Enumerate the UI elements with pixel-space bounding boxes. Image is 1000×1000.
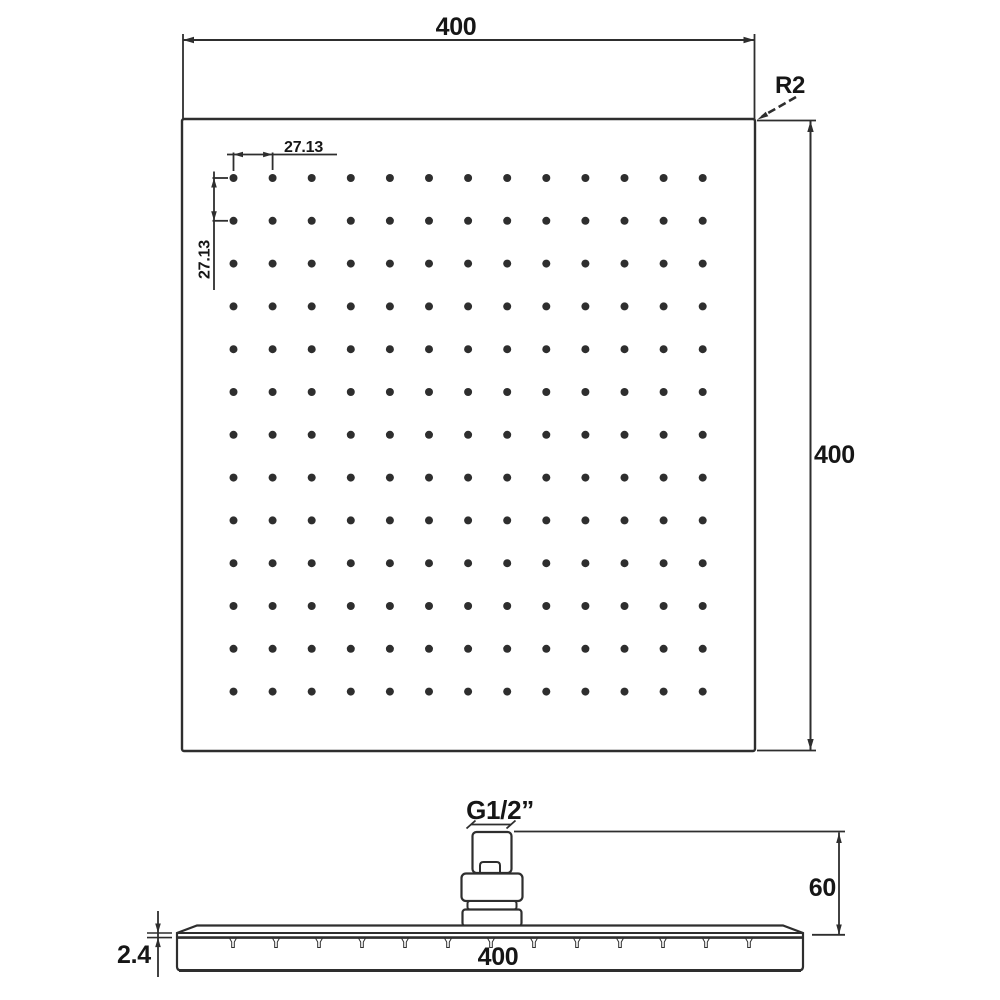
nozzle-hole: [464, 260, 472, 268]
nozzle-hole: [308, 217, 316, 225]
corner-radius-label: R2: [775, 74, 805, 98]
nozzle-hole: [269, 174, 277, 182]
nozzle-hole: [347, 516, 355, 524]
nozzle-hole: [269, 602, 277, 610]
nozzle-hole: [308, 602, 316, 610]
hole-pitch-horizontal-label: 27.13: [284, 140, 323, 156]
nozzle-hole: [660, 260, 668, 268]
nozzle-hole: [347, 345, 355, 353]
nozzle-hole: [308, 345, 316, 353]
nozzle-hole: [425, 516, 433, 524]
nozzle-hole: [347, 474, 355, 482]
nozzle-hole: [581, 559, 589, 567]
connector-height-dim-label: 60: [800, 876, 836, 901]
nozzle-hole: [230, 474, 238, 482]
arrowhead-icon: [155, 924, 161, 934]
nozzle-hole: [660, 302, 668, 310]
nozzle-hole: [542, 260, 550, 268]
nozzle-hole: [269, 474, 277, 482]
side-width-dim-label: 400: [462, 945, 534, 970]
nozzle-hole: [425, 431, 433, 439]
connector-height-dimension: [514, 832, 845, 935]
nozzle-hole: [581, 174, 589, 182]
nozzle-hole: [269, 688, 277, 696]
nozzle-hole: [386, 260, 394, 268]
nozzle-hole: [347, 260, 355, 268]
nozzle-hole: [660, 388, 668, 396]
top-width-dimension: [183, 34, 755, 119]
nozzle-hole: [464, 388, 472, 396]
nozzle-hole: [621, 174, 629, 182]
nozzle-hole: [269, 559, 277, 567]
nozzle-hole: [308, 302, 316, 310]
nozzle-hole: [308, 388, 316, 396]
nozzle-hole: [581, 388, 589, 396]
nozzle-hole: [503, 217, 511, 225]
nozzle-hole: [621, 217, 629, 225]
nozzle-hole: [621, 688, 629, 696]
right-height-dim-label: 400: [814, 443, 855, 468]
nozzle-hole: [660, 688, 668, 696]
nozzle-hole: [660, 345, 668, 353]
nozzle-hole: [308, 688, 316, 696]
hole-pitch-vertical-label: 27.13: [198, 225, 215, 295]
nozzle-hole: [581, 602, 589, 610]
nozzle-hole: [699, 688, 707, 696]
nozzle-hole: [308, 431, 316, 439]
nozzle-hole: [542, 602, 550, 610]
nozzle-hole: [542, 302, 550, 310]
nozzle-hole: [386, 645, 394, 653]
nozzle-hole: [425, 388, 433, 396]
nozzle-hole: [464, 559, 472, 567]
nozzle-hole: [581, 345, 589, 353]
nozzle-hole: [542, 431, 550, 439]
nozzle-hole: [621, 431, 629, 439]
nozzle-hole: [230, 516, 238, 524]
nozzle-hole: [660, 645, 668, 653]
nozzle-hole: [230, 688, 238, 696]
nozzle-hole: [621, 645, 629, 653]
nozzle-hole: [269, 388, 277, 396]
nozzle-hole: [503, 431, 511, 439]
arrowhead-icon: [744, 37, 755, 43]
nozzle-hole: [542, 688, 550, 696]
nozzle-hole: [230, 645, 238, 653]
nozzle-hole: [269, 431, 277, 439]
nozzle-hole: [660, 217, 668, 225]
nozzle-hole: [542, 559, 550, 567]
thread-stub: [473, 832, 512, 873]
nozzle-hole: [386, 302, 394, 310]
nozzle-hole: [699, 302, 707, 310]
nozzle-hole: [386, 217, 394, 225]
nozzle-hole: [542, 645, 550, 653]
nozzle-hole: [699, 174, 707, 182]
nozzle-hole: [464, 645, 472, 653]
nozzle-hole: [386, 516, 394, 524]
nozzle-hole: [386, 431, 394, 439]
plate-thickness-dim-label: 2.4: [117, 943, 151, 968]
nozzle-hole: [699, 431, 707, 439]
nozzle-hole: [425, 602, 433, 610]
drawing-geometry: [0, 0, 1000, 1000]
nozzle-hole: [347, 217, 355, 225]
nozzle-hole: [464, 516, 472, 524]
nozzle-hole: [347, 645, 355, 653]
connector-lower-collar: [463, 910, 522, 927]
nozzle-hole: [269, 645, 277, 653]
top-width-dim-label: 400: [420, 15, 492, 40]
nozzle-hole: [308, 516, 316, 524]
nozzle-hole: [503, 645, 511, 653]
arrowhead-icon: [807, 121, 813, 132]
nozzle-hole: [425, 302, 433, 310]
nozzle-hole: [269, 302, 277, 310]
nozzle-hole: [660, 431, 668, 439]
nozzle-hole: [347, 174, 355, 182]
nozzle-hole: [503, 688, 511, 696]
nozzle-hole: [425, 345, 433, 353]
nozzle-hole: [269, 260, 277, 268]
nozzle-hole: [308, 260, 316, 268]
nozzle-hole: [699, 217, 707, 225]
nozzle-hole: [621, 602, 629, 610]
nozzle-hole: [386, 388, 394, 396]
nozzle-hole: [542, 516, 550, 524]
drawing-sheet: 400 400 R2 27.13 27.13 G1/2” 60 2.4 400: [0, 0, 1000, 1000]
arrowhead-icon: [183, 37, 194, 43]
nozzle-hole: [542, 474, 550, 482]
nozzle-hole: [503, 559, 511, 567]
nozzle-hole: [542, 174, 550, 182]
nozzle-hole: [542, 345, 550, 353]
nozzle-hole: [660, 516, 668, 524]
nozzle-hole: [503, 174, 511, 182]
nozzle-hole: [581, 516, 589, 524]
nozzle-hole: [660, 474, 668, 482]
right-height-dimension: [757, 121, 816, 751]
nozzle-hole: [581, 260, 589, 268]
nozzle-hole: [347, 688, 355, 696]
nozzle-hole: [581, 217, 589, 225]
nozzle-hole: [230, 345, 238, 353]
nozzle-hole: [347, 431, 355, 439]
nozzle-hole: [542, 388, 550, 396]
thread-size-label: G1/2”: [460, 797, 540, 823]
nozzle-hole: [660, 174, 668, 182]
nozzle-hole: [621, 559, 629, 567]
arrowhead-icon: [836, 925, 842, 935]
nozzle-hole: [425, 559, 433, 567]
nozzle-hole: [464, 474, 472, 482]
arrowhead-icon: [836, 833, 842, 843]
nozzle-hole: [308, 645, 316, 653]
nozzle-hole: [230, 260, 238, 268]
nozzle-hole: [230, 174, 238, 182]
nozzle-hole: [308, 559, 316, 567]
nozzle-hole: [230, 602, 238, 610]
nozzle-hole: [308, 474, 316, 482]
nozzle-hole: [230, 388, 238, 396]
nozzle-hole: [464, 431, 472, 439]
nozzle-hole: [269, 345, 277, 353]
nozzle-hole: [425, 645, 433, 653]
nozzle-hole: [230, 302, 238, 310]
nozzle-hole: [269, 516, 277, 524]
nozzle-hole: [660, 602, 668, 610]
nozzle-hole: [230, 217, 238, 225]
nozzle-hole: [581, 302, 589, 310]
nozzle-hole: [425, 260, 433, 268]
nozzle-hole: [581, 431, 589, 439]
nozzle-hole: [425, 217, 433, 225]
nozzle-hole: [503, 260, 511, 268]
nozzle-hole: [503, 516, 511, 524]
nozzle-hole: [621, 260, 629, 268]
inlet-connector: [462, 832, 523, 926]
arrowhead-icon: [807, 739, 813, 750]
nozzle-hole: [503, 474, 511, 482]
nozzle-hole: [230, 431, 238, 439]
nozzle-hole: [269, 217, 277, 225]
nozzle-hole: [621, 345, 629, 353]
nozzle-hole: [581, 474, 589, 482]
nozzle-hole: [347, 302, 355, 310]
nozzle-hole: [464, 602, 472, 610]
nozzle-hole: [699, 474, 707, 482]
nozzle-hole: [386, 474, 394, 482]
nozzle-hole: [425, 174, 433, 182]
nozzle-hole: [464, 217, 472, 225]
nozzle-hole: [621, 302, 629, 310]
nozzle-hole: [347, 602, 355, 610]
nozzle-hole: [699, 260, 707, 268]
nozzle-hole: [230, 559, 238, 567]
nozzle-hole: [621, 388, 629, 396]
nozzle-hole: [699, 345, 707, 353]
nozzle-hole: [386, 174, 394, 182]
nozzle-hole: [386, 345, 394, 353]
nozzle-hole: [699, 559, 707, 567]
nozzle-hole: [464, 302, 472, 310]
nozzle-hole: [699, 602, 707, 610]
connector-waist-ring: [468, 901, 517, 910]
nozzle-hole: [503, 388, 511, 396]
nozzle-hole: [503, 302, 511, 310]
nozzle-hole: [308, 174, 316, 182]
nozzle-hole: [503, 602, 511, 610]
nozzle-hole: [699, 516, 707, 524]
nozzle-hole: [542, 217, 550, 225]
nozzle-hole: [425, 688, 433, 696]
nozzle-hole: [347, 559, 355, 567]
nozzle-hole: [699, 645, 707, 653]
nozzle-hole: [386, 602, 394, 610]
arrowhead-icon: [758, 112, 769, 120]
nozzle-hole: [347, 388, 355, 396]
nozzle-hole: [464, 345, 472, 353]
connector-upper-collar: [462, 874, 523, 902]
nozzle-hole: [386, 688, 394, 696]
nozzle-hole: [581, 645, 589, 653]
nozzle-hole: [621, 516, 629, 524]
corner-radius-leader: [758, 97, 797, 120]
arrowhead-icon: [155, 938, 161, 948]
nozzle-hole: [621, 474, 629, 482]
nozzle-hole: [503, 345, 511, 353]
top-view: [182, 34, 816, 751]
nozzle-hole: [425, 474, 433, 482]
nozzle-hole: [660, 559, 668, 567]
nozzle-hole: [464, 174, 472, 182]
nozzle-hole: [386, 559, 394, 567]
nozzle-hole: [581, 688, 589, 696]
nozzle-hole: [699, 388, 707, 396]
nozzle-hole: [464, 688, 472, 696]
